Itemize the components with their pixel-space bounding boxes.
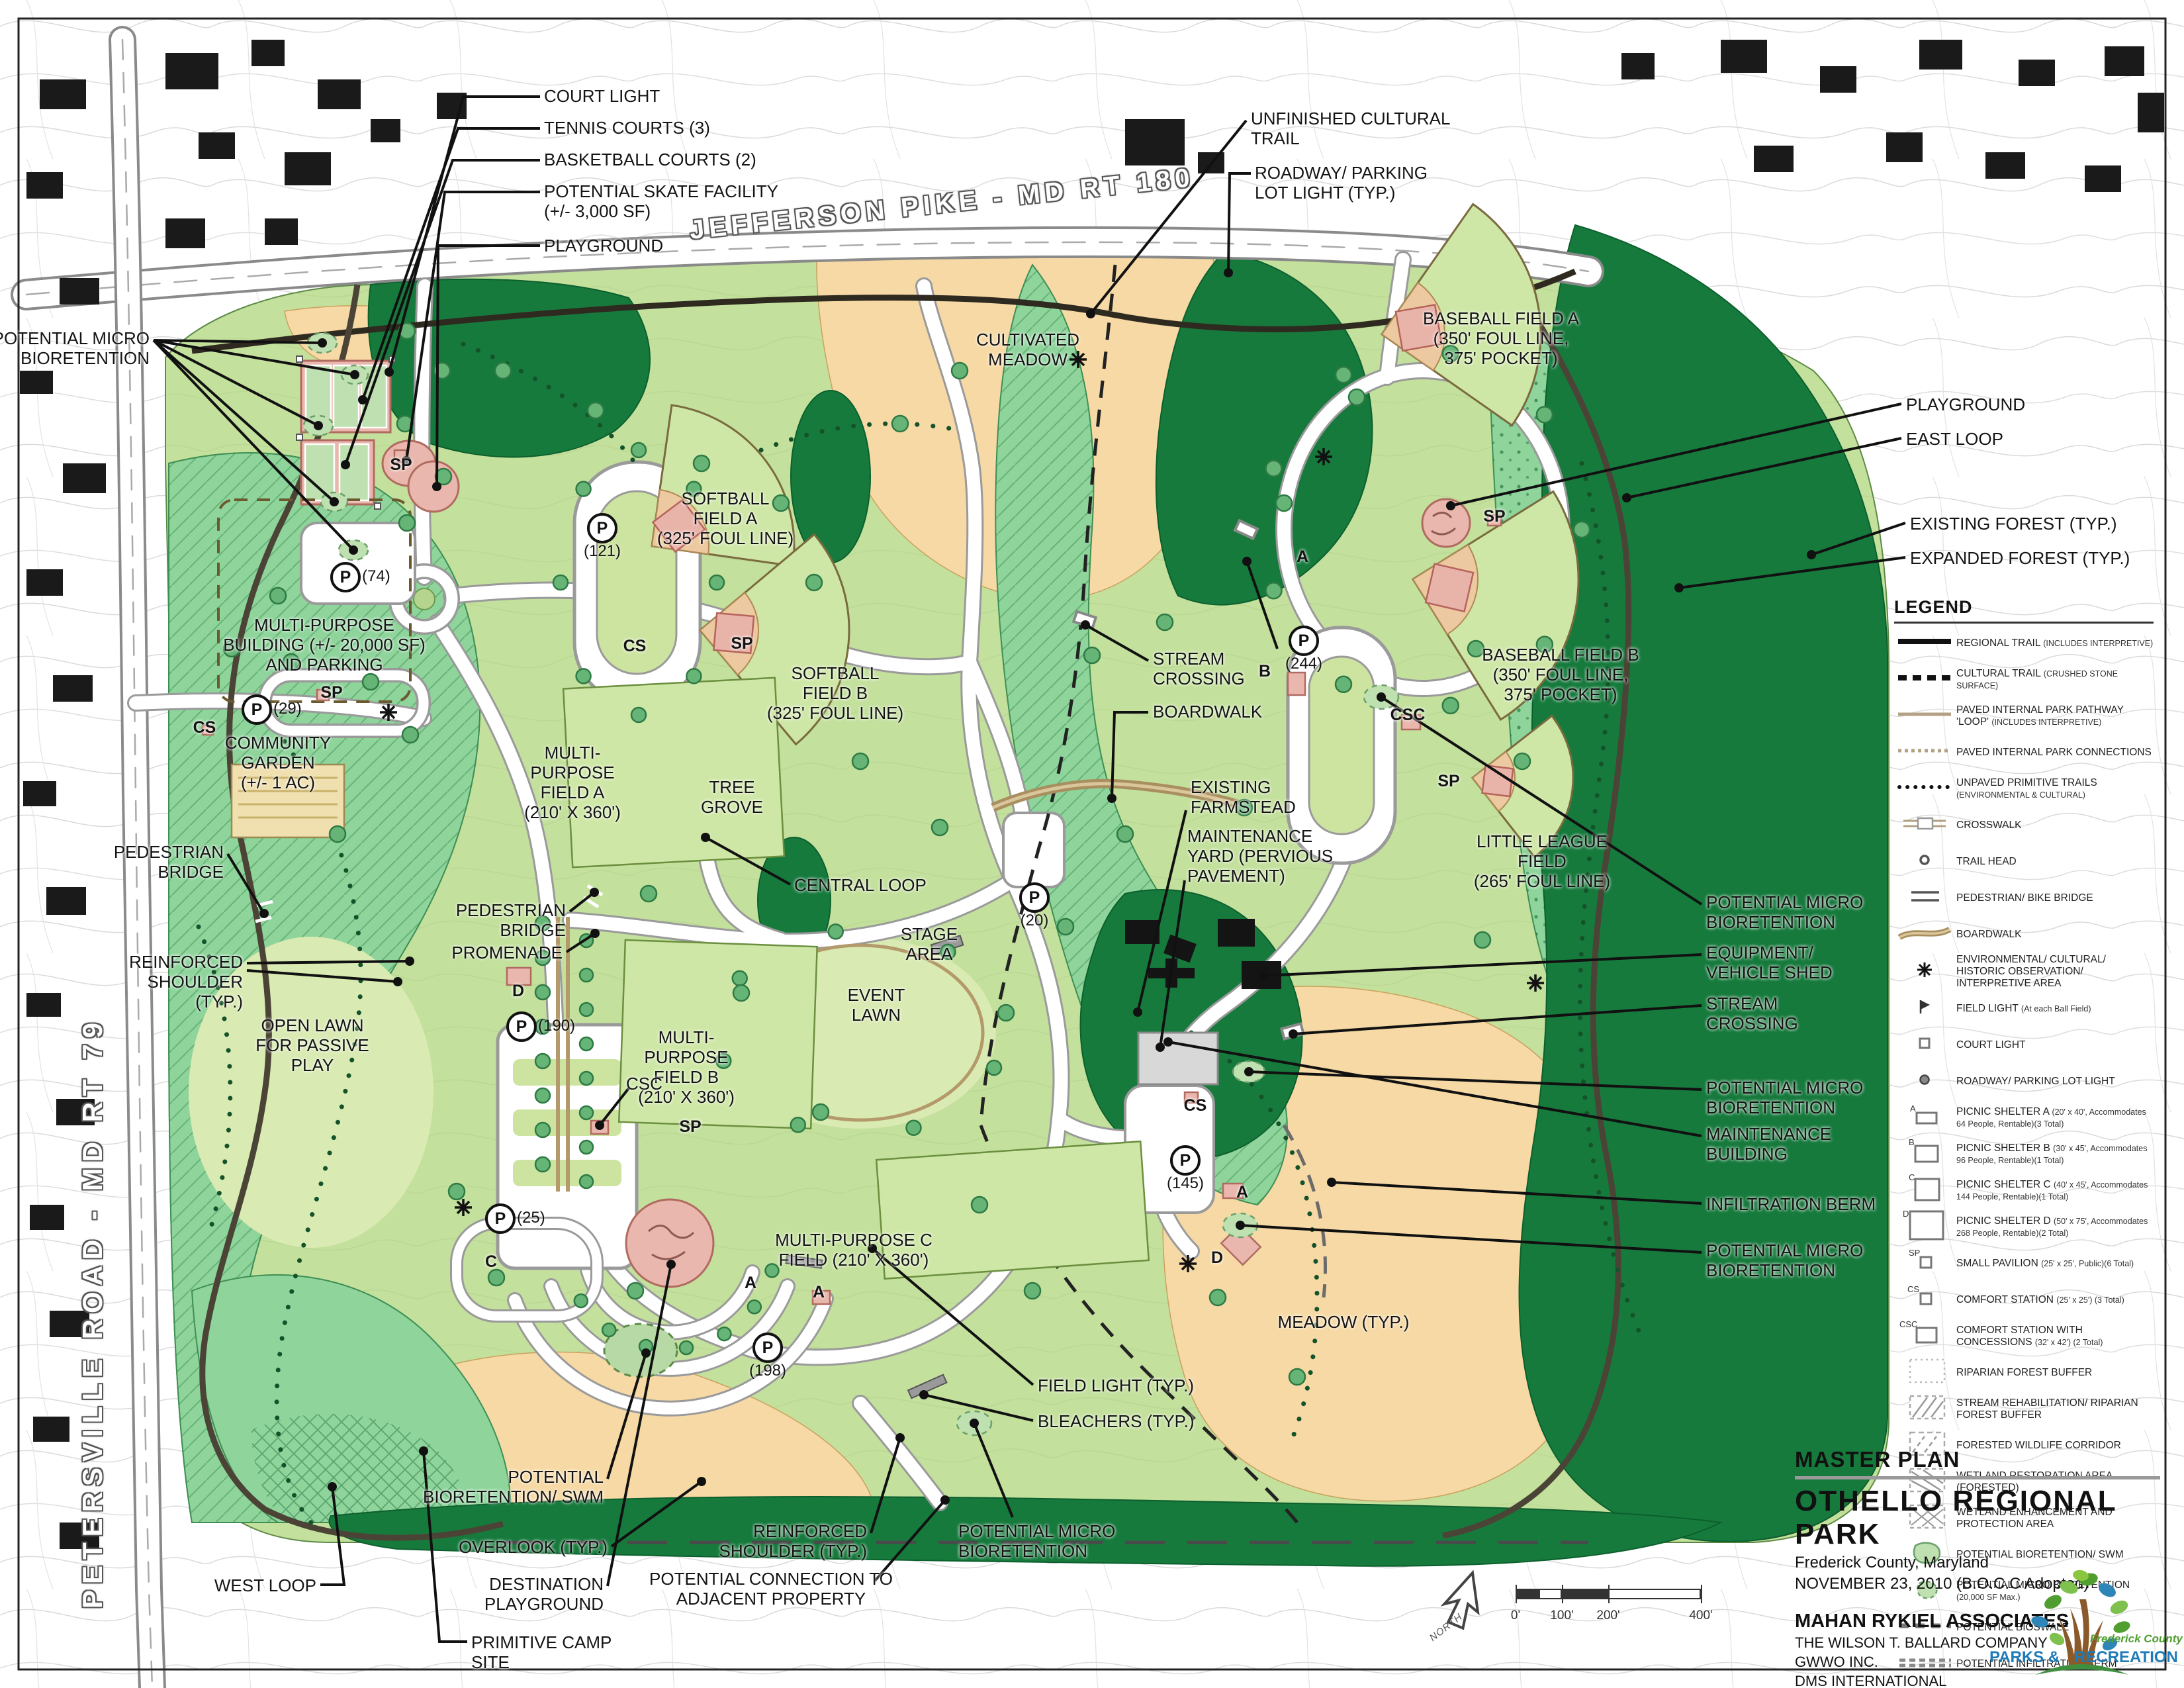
marker-sp-courts-text: SP [390,455,412,475]
label-mp-building-line: MULTI-PURPOSE [223,615,426,635]
legend-item-shelter-c: CPICNIC SHELTER C (40' x 45', Accommodat… [1894,1174,2154,1207]
marker-c-p25: C [485,1252,497,1272]
legend-item-main: COMFORT STATION [1956,1294,2054,1305]
label-stream-crossing-e: STREAMCROSSING [1706,994,1798,1033]
legend-item-shelter-b: BPICNIC SHELTER B (30' x 45', Accommodat… [1894,1137,2154,1171]
legend-item-main: PAVED INTERNAL PARK CONNECTIONS [1956,747,2152,758]
svg-text:D: D [1903,1210,1909,1219]
marker-sp-baseball-a: SP [1483,507,1505,526]
legend-item-main: REGIONAL TRAIL [1956,637,2040,649]
marker-a-crescent: A [813,1283,825,1302]
label-micro-bioretention-e1: POTENTIAL MICROBIORETENTION [1706,892,1863,932]
marker-sp-garden-text: SP [320,683,342,702]
label-open-lawn: OPEN LAWNFOR PASSIVEPLAY [255,1015,369,1075]
label-stream-crossing-e-line: STREAM [1706,994,1798,1013]
parking-121-count: (121) [584,542,621,561]
label-roadway-parking-light-line: LOT LIGHT (TYP.) [1255,183,1428,203]
label-west-loop-line: WEST LOOP [214,1575,316,1595]
label-mp-field-a-line: FIELD A [524,782,621,802]
label-ped-bridge-c-line: BRIDGE [456,920,566,940]
marker-d-p145-text: D [1211,1248,1223,1268]
label-destination-playground-line: PLAYGROUND [484,1594,604,1614]
marker-sp-littleleague: SP [1437,772,1459,791]
label-stream-crossing-c-line: CROSSING [1153,669,1245,688]
map-artwork [0,0,2184,1688]
label-softball-b: SOFTBALLFIELD B(325' FOUL LINE) [767,663,903,723]
label-potential-connection-line: POTENTIAL CONNECTION TO [649,1569,893,1589]
road-label-petersville: PETERSVILLE ROAD - MD RT 79 [77,629,109,1609]
legend-title: LEGEND [1894,597,2154,624]
legend-item-label: PICNIC SHELTER C (40' x 45', Accommodate… [1956,1179,2154,1203]
legend-item-main: CULTURAL TRAIL [1956,668,2040,679]
legend-item-main: CROSSWALK [1956,820,2021,831]
legend-item-main: UNPAVED PRIMITIVE TRAILS [1956,777,2097,788]
label-micro-bioretention-e3-line: POTENTIAL MICRO [1706,1241,1863,1260]
label-reinforced-shoulder-w-line: (TYP.) [129,992,243,1011]
parking-29-count: (29) [273,700,302,718]
legend-item-label: COMFORT STATION WITH CONCESSIONS (32' x … [1956,1325,2154,1348]
legend-item-paved-connection: PAVED INTERNAL PARK CONNECTIONS [1894,735,2154,769]
label-skate-facility-line: (+/- 3,000 SF) [544,201,778,221]
label-micro-bioretention-s-line: POTENTIAL MICRO [958,1521,1115,1541]
cultural-trail-icon [1894,663,1956,696]
parking-25: P(25) [485,1203,516,1234]
label-open-lawn-line: OPEN LAWN [255,1015,369,1035]
parking-244: P(244) [1289,626,1319,656]
legend-item-paved-loop: PAVED INTERNAL PARK PATHWAY 'LOOP' (INCL… [1894,699,2154,733]
paved-connection-icon [1894,735,1956,769]
legend-item-label: CULTURAL TRAIL (CRUSHED STONE SURFACE) [1956,668,2154,692]
marker-cs-garden-text: CS [193,718,216,737]
label-mp-field-c-line: FIELD (210' X 360') [775,1250,933,1270]
label-open-lawn-line: PLAY [255,1055,369,1075]
scale-block [1562,1589,1608,1599]
parking-icon: P [485,1203,516,1234]
label-existing-forest: EXISTING FOREST (TYP.) [1910,514,2117,534]
small-pavilion-icon: SP [1894,1246,1956,1280]
legend-item-label: STREAM REHABILITATION/ RIPARIAN FOREST B… [1956,1397,2154,1421]
label-primitive-camp: PRIMITIVE CAMPSITE [471,1632,612,1672]
title-rule [1795,1476,2160,1479]
svg-text:SP: SP [1909,1248,1920,1258]
north-arrow: NORTH [1431,1566,1517,1646]
label-infiltration-berm-line: INFILTRATION BERM [1706,1194,1876,1214]
label-micro-bioretention-nw-line: BIORETENTION [0,348,150,368]
legend-item-main: STREAM REHABILITATION/ RIPARIAN FOREST B… [1956,1397,2138,1421]
legend-item-detail: (INCLUDES INTERPRETIVE) [2043,639,2153,648]
legend-item-main: SMALL PAVILION [1956,1258,2038,1269]
label-field-light: FIELD LIGHT (TYP.) [1038,1376,1194,1395]
label-baseball-field-a: BASEBALL FIELD A(350' FOUL LINE,375' POC… [1423,308,1579,368]
marker-cs-softball-text: CS [623,637,647,656]
label-micro-bioretention-e1-line: POTENTIAL MICRO [1706,892,1863,912]
label-infiltration-berm: INFILTRATION BERM [1706,1194,1876,1214]
legend-item-main: ROADWAY/ PARKING LOT LIGHT [1956,1076,2115,1087]
legend-item-main: RIPARIAN FOREST BUFFER [1956,1367,2092,1378]
scale-label: 100' [1550,1609,1573,1623]
svg-text:A: A [1910,1103,1916,1113]
marker-a-p145: A [1236,1183,1248,1202]
label-boardwalk-line: BOARDWALK [1153,702,1262,722]
parking-icon: P [506,1011,537,1042]
label-central-loop-line: CENTRAL LOOP [794,875,927,895]
label-bioretention-swm-line: POTENTIAL [423,1467,604,1487]
label-softball-a-line: SOFTBALL [657,489,794,508]
court-light-icon [1894,1028,1956,1062]
label-primitive-camp-line: PRIMITIVE CAMP [471,1632,612,1652]
parking-244-count: (244) [1285,655,1322,673]
legend-item-label: PICNIC SHELTER D (50' x 75', Accommodate… [1956,1215,2154,1239]
label-micro-bioretention-s: POTENTIAL MICROBIORETENTION [958,1521,1115,1561]
label-mp-building: MULTI-PURPOSEBUILDING (+/- 20,000 SF)AND… [223,615,426,675]
marker-b-east-text: B [1259,662,1271,681]
label-ped-bridge-w-line: BRIDGE [114,862,224,882]
label-reinforced-shoulder-w-line: SHOULDER [129,972,243,992]
svg-text:CS: CS [1907,1284,1919,1294]
label-micro-bioretention-e3: POTENTIAL MICROBIORETENTION [1706,1241,1863,1280]
legend-item-label: TRAIL HEAD [1956,856,2154,868]
legend-item-label: FIELD LIGHT (At each Ball Field) [1956,1003,2154,1015]
marker-csc-east-text: CSC [1390,706,1426,725]
marker-cs-p145: CS [1184,1096,1207,1115]
parking-198: P(198) [752,1333,783,1363]
marker-a-p145-text: A [1236,1183,1248,1202]
label-unfinished-cultural-trail-line: UNFINISHED CULTURAL [1251,109,1450,128]
marker-csc-east: CSC [1390,706,1426,725]
parking-20: P(20) [1019,882,1050,913]
parking-29: P(29) [242,694,272,725]
label-unfinished-cultural-trail-line: TRAIL [1251,128,1450,148]
shelter-c-icon: C [1894,1174,1956,1207]
legend-item-ped-bridge: PEDESTRIAN/ BIKE BRIDGE [1894,881,2154,915]
label-stream-crossing-c: STREAMCROSSING [1153,649,1245,688]
marker-a-crescent-text: A [813,1283,825,1302]
label-court-light: COURT LIGHT [544,86,660,106]
label-softball-a-line: FIELD A [657,508,794,528]
label-tennis-courts-line: TENNIS COURTS (3) [544,118,710,138]
scale-tick [1608,1585,1610,1603]
label-expanded-forest: EXPANDED FOREST (TYP.) [1910,548,2130,568]
marker-b-east: B [1259,662,1271,681]
label-csc-central: CSC [626,1074,662,1094]
label-baseball-field-a-line: (350' FOUL LINE, [1423,328,1579,348]
logo-county-name: Frederick County [2090,1632,2183,1646]
label-playground-e: PLAYGROUND [1906,395,2025,414]
park-title: OTHELLO REGIONAL PARK [1795,1485,2171,1551]
marker-d-promenade-text: D [512,982,524,1001]
label-reinforced-shoulder-s: REINFORCEDSHOULDER (TYP.) [719,1521,867,1561]
parking-icon: P [587,513,617,543]
label-reinforced-shoulder-s-line: REINFORCED [719,1521,867,1541]
shelter-d-icon: D [1894,1210,1956,1244]
label-mp-field-b-line: MULTI- [638,1027,735,1047]
legend-item-main: PICNIC SHELTER A [1956,1106,2049,1117]
label-softball-a: SOFTBALLFIELD A(325' FOUL LINE) [657,489,794,548]
label-mp-building-line: AND PARKING [223,655,426,675]
legend-item-main: BOARDWALK [1956,929,2021,940]
parking-198-count: (198) [749,1362,786,1380]
marker-sp-littleleague-text: SP [1437,772,1459,791]
parking-icon: P [330,562,361,592]
label-cultivated-meadow-line: CULTIVATED [976,330,1079,350]
observation-icon [1894,955,1956,988]
parks-recreation-logo: Frederick County PARKS & RECREATION [1989,1568,2181,1685]
label-bleachers: BLEACHERS (TYP.) [1038,1411,1194,1431]
label-unfinished-cultural-trail: UNFINISHED CULTURALTRAIL [1251,109,1450,148]
marker-sp-softball: SP [731,634,752,653]
riparian-icon [1894,1356,1956,1389]
legend-item-court-light: COURT LIGHT [1894,1028,2154,1062]
legend-item-cultural-trail: CULTURAL TRAIL (CRUSHED STONE SURFACE) [1894,663,2154,696]
label-mp-field-b: MULTI-PURPOSEFIELD B(210' X 360') [638,1027,735,1107]
regional-trail-icon [1894,626,1956,660]
marker-sp-courts: SP [390,455,412,475]
label-event-lawn: EVENTLAWN [848,985,905,1025]
label-existing-farmstead-line: EXISTING [1191,777,1296,797]
legend-item-label: RIPARIAN FOREST BUFFER [1956,1367,2154,1379]
label-mp-field-c-line: MULTI-PURPOSE C [775,1230,933,1250]
legend-item-detail: (25' x 25') (3 Total) [2056,1295,2124,1305]
marker-a-mpc-text: A [745,1274,756,1293]
label-playground-nw: PLAYGROUND [544,236,663,256]
master-plan-sheet: JEFFERSON PIKE - MD RT 180 PETERSVILLE R… [0,0,2184,1688]
label-csc-central-line: CSC [626,1074,662,1094]
legend-item-detail: (32' x 42') (2 Total) [2035,1338,2103,1347]
label-court-light-line: COURT LIGHT [544,86,660,106]
label-maintenance-yard-line: PAVEMENT) [1187,866,1333,886]
legend-item-label: UNPAVED PRIMITIVE TRAILS (ENVIRONMENTAL … [1956,777,2154,801]
label-roadway-parking-light: ROADWAY/ PARKINGLOT LIGHT (TYP.) [1255,163,1428,203]
scale-tick [1701,1585,1702,1603]
parking-icon: P [1019,882,1050,913]
legend-item-label: PICNIC SHELTER B (30' x 45', Accommodate… [1956,1143,2154,1166]
label-primitive-camp-line: SITE [471,1652,612,1672]
legend-item-observation: ENVIRONMENTAL/ CULTURAL/ HISTORIC OBSERV… [1894,954,2154,989]
label-playground-e-line: PLAYGROUND [1906,395,2025,414]
label-maintenance-building: MAINTENANCEBUILDING [1706,1124,1831,1164]
field-light-icon [1894,992,1956,1025]
logo-parks: PARKS & [1989,1648,2060,1667]
label-cultivated-meadow: CULTIVATEDMEADOW [976,330,1079,369]
label-existing-farmstead-line: FARMSTEAD [1191,797,1296,817]
marker-sp-baseball-a-text: SP [1483,507,1505,526]
label-east-loop-line: EAST LOOP [1906,429,2003,449]
label-meadow-line: MEADOW (TYP.) [1278,1312,1410,1332]
marker-sp-mpc: SP [679,1117,701,1137]
label-maintenance-yard: MAINTENANCEYARD (PERVIOUSPAVEMENT) [1187,826,1333,886]
marker-cs-p145-text: CS [1184,1096,1207,1115]
legend-item-shelter-d: DPICNIC SHELTER D (50' x 75', Accommodat… [1894,1210,2154,1244]
legend-item-label: COMFORT STATION (25' x 25') (3 Total) [1956,1294,2154,1306]
parking-icon: P [752,1333,783,1363]
svg-text:C: C [1909,1174,1915,1182]
label-potential-connection: POTENTIAL CONNECTION TOADJACENT PROPERTY [649,1569,893,1609]
legend-item-detail: (At each Ball Field) [2021,1004,2091,1013]
label-equipment-shed-line: VEHICLE SHED [1706,962,1833,982]
parking-icon: P [1289,626,1319,656]
crosswalk-icon [1894,808,1956,842]
label-bleachers-line: BLEACHERS (TYP.) [1038,1411,1194,1431]
legend-item-trail-head: TRAIL HEAD [1894,845,2154,878]
label-softball-b-line: FIELD B [767,683,903,703]
label-overlook-line: OVERLOOK (TYP.) [459,1537,608,1557]
legend-item-detail: (ENVIRONMENTAL & CULTURAL) [1956,790,2085,800]
label-micro-bioretention-nw-line: POTENTIAL MICRO [0,328,150,348]
label-east-loop: EAST LOOP [1906,429,2003,449]
label-tree-grove-line: TREE [701,777,763,797]
label-open-lawn-line: FOR PASSIVE [255,1035,369,1055]
parking-121: P(121) [587,513,617,543]
legend-item-main: TRAIL HEAD [1956,856,2017,867]
label-mp-field-a: MULTI-PURPOSEFIELD A(210' X 360') [524,743,621,823]
scale-bar: 0'100'200'400' [1516,1589,1727,1628]
label-micro-bioretention-e1-line: BIORETENTION [1706,912,1863,932]
label-maintenance-building-line: MAINTENANCE [1706,1124,1831,1144]
label-little-league: LITTLE LEAGUEFIELD(265' FOUL LINE) [1474,831,1610,891]
label-skate-facility-line: POTENTIAL SKATE FACILITY [544,181,778,201]
label-softball-b-line: SOFTBALL [767,663,903,683]
marker-a-east: A [1297,547,1308,567]
marker-d-promenade: D [512,982,524,1001]
legend-item-label: REGIONAL TRAIL (INCLUDES INTERPRETIVE) [1956,637,2154,649]
label-field-light-line: FIELD LIGHT (TYP.) [1038,1376,1194,1395]
marker-d-p145: D [1211,1248,1223,1268]
label-micro-bioretention-e2: POTENTIAL MICROBIORETENTION [1706,1078,1863,1117]
legend-item-main: PICNIC SHELTER C [1956,1179,2051,1190]
label-maintenance-yard-line: MAINTENANCE [1187,826,1333,846]
label-reinforced-shoulder-w-line: REINFORCED [129,952,243,972]
label-bioretention-swm-line: BIORETENTION/ SWM [423,1487,604,1507]
legend-item-main: PICNIC SHELTER D [1956,1215,2051,1227]
label-destination-playground: DESTINATIONPLAYGROUND [484,1574,604,1614]
marker-a-east-text: A [1297,547,1308,567]
label-ped-bridge-w: PEDESTRIANBRIDGE [114,842,224,882]
parking-74-count: (74) [362,567,390,586]
label-mp-building-line: BUILDING (+/- 20,000 SF) [223,635,426,655]
legend-item-label: CROSSWALK [1956,820,2154,831]
parking-light-icon [1894,1064,1956,1098]
label-ped-bridge-c-line: PEDESTRIAN [456,900,566,920]
label-little-league-line: FIELD [1474,851,1610,871]
legend-item-label: ROADWAY/ PARKING LOT LIGHT [1956,1076,2154,1088]
scale-label: 400' [1689,1609,1712,1623]
legend-item-label: PEDESTRIAN/ BIKE BRIDGE [1956,892,2154,904]
primitive-trail-icon [1894,772,1956,806]
label-central-loop: CENTRAL LOOP [794,875,927,895]
label-event-lawn-line: EVENT [848,985,905,1005]
label-promenade: PROMENADE [451,943,563,962]
label-reinforced-shoulder-w: REINFORCEDSHOULDER(TYP.) [129,952,243,1011]
label-cultivated-meadow-line: MEADOW [976,350,1079,369]
label-stream-crossing-e-line: CROSSING [1706,1013,1798,1033]
legend-item-primitive-trail: UNPAVED PRIMITIVE TRAILS (ENVIRONMENTAL … [1894,772,2154,806]
label-ped-bridge-w-line: PEDESTRIAN [114,842,224,862]
logo-tree-icon [1989,1568,2181,1685]
label-equipment-shed: EQUIPMENT/VEHICLE SHED [1706,943,1833,982]
label-expanded-forest-line: EXPANDED FOREST (TYP.) [1910,548,2130,568]
ped-bridge-icon [1894,881,1956,915]
label-potential-connection-line: ADJACENT PROPERTY [649,1589,893,1609]
label-playground-nw-line: PLAYGROUND [544,236,663,256]
marker-cs-softball: CS [623,637,647,656]
label-meadow: MEADOW (TYP.) [1278,1312,1410,1332]
marker-sp-softball-text: SP [731,634,752,653]
label-roadway-parking-light-line: ROADWAY/ PARKING [1255,163,1428,183]
label-reinforced-shoulder-s-line: SHOULDER (TYP.) [719,1541,867,1561]
label-softball-b-line: (325' FOUL LINE) [767,703,903,723]
label-overlook: OVERLOOK (TYP.) [459,1537,608,1557]
legend-item-label: BOARDWALK [1956,929,2154,941]
label-mp-field-a-line: MULTI- [524,743,621,763]
legend-item-riparian: RIPARIAN FOREST BUFFER [1894,1356,2154,1389]
label-baseball-field-a-line: BASEBALL FIELD A [1423,308,1579,328]
label-stage-area-line: STAGE [901,924,958,944]
scale-block [1516,1589,1539,1599]
scale-block [1539,1589,1562,1599]
paved-loop-icon [1894,699,1956,733]
label-west-loop: WEST LOOP [214,1575,316,1595]
label-baseball-field-b-line: 375' POCKET) [1482,684,1639,704]
label-ped-bridge-c: PEDESTRIANBRIDGE [456,900,566,940]
label-destination-playground-line: DESTINATION [484,1574,604,1594]
label-mp-field-c: MULTI-PURPOSE CFIELD (210' X 360') [775,1230,933,1270]
legend-item-label: ENVIRONMENTAL/ CULTURAL/ HISTORIC OBSERV… [1956,954,2154,989]
legend-item-label: PICNIC SHELTER A (20' x 40', Accommodate… [1956,1106,2154,1130]
label-existing-forest-line: EXISTING FOREST (TYP.) [1910,514,2117,534]
legend-item-main: ENVIRONMENTAL/ CULTURAL/ HISTORIC OBSERV… [1956,954,2106,989]
scale-label: 200' [1596,1609,1619,1623]
comfort-station-concessions-icon: CSC [1894,1319,1956,1353]
parking-20-count: (20) [1021,912,1049,930]
label-mp-field-a-line: (210' X 360') [524,802,621,822]
parking-25-count: (25) [517,1209,545,1227]
legend-item-boardwalk: BOARDWALK [1894,917,2154,951]
label-baseball-field-b-line: BASEBALL FIELD B [1482,645,1639,665]
legend-item-detail: (25' x 25', Public)(6 Total) [2041,1259,2134,1268]
parking-145-count: (145) [1167,1174,1204,1193]
label-micro-bioretention-nw: POTENTIAL MICROBIORETENTION [0,328,150,368]
label-basketball-courts-line: BASKETBALL COURTS (2) [544,150,756,169]
plan-type: MASTER PLAN [1795,1447,2171,1472]
label-little-league-line: (265' FOUL LINE) [1474,871,1610,891]
legend-item-main: FIELD LIGHT [1956,1003,2019,1014]
comfort-station-icon: CS [1894,1283,1956,1317]
label-tree-grove: TREEGROVE [701,777,763,817]
legend-item-field-light: FIELD LIGHT (At each Ball Field) [1894,992,2154,1025]
label-micro-bioretention-e3-line: BIORETENTION [1706,1260,1863,1280]
legend-item-small-pavilion: SPSMALL PAVILION (25' x 25', Public)(6 T… [1894,1246,2154,1280]
parking-74: P(74) [330,562,361,592]
legend-item-main: PICNIC SHELTER B [1956,1143,2050,1154]
label-softball-a-line: (325' FOUL LINE) [657,528,794,548]
stream-rehab-icon [1894,1392,1956,1426]
label-equipment-shed-line: EQUIPMENT/ [1706,943,1833,962]
legend-item-shelter-a: APICNIC SHELTER A (20' x 40', Accommodat… [1894,1101,2154,1135]
svg-text:CSC: CSC [1899,1319,1917,1329]
label-maintenance-building-line: BUILDING [1706,1144,1831,1164]
label-mp-field-a-line: PURPOSE [524,763,621,782]
legend-item-parking-light: ROADWAY/ PARKING LOT LIGHT [1894,1064,2154,1098]
marker-cs-garden: CS [193,718,216,737]
label-micro-bioretention-e2-line: POTENTIAL MICRO [1706,1078,1863,1098]
parking-190: P(190) [506,1011,537,1042]
parking-145: P(145) [1170,1145,1201,1176]
legend-item-detail: (INCLUDES INTERPRETIVE) [1991,718,2101,727]
marker-sp-mpc-text: SP [679,1117,701,1137]
label-micro-bioretention-e2-line: BIORETENTION [1706,1098,1863,1117]
legend-item-label: COURT LIGHT [1956,1039,2154,1051]
parking-icon: P [1170,1145,1201,1176]
